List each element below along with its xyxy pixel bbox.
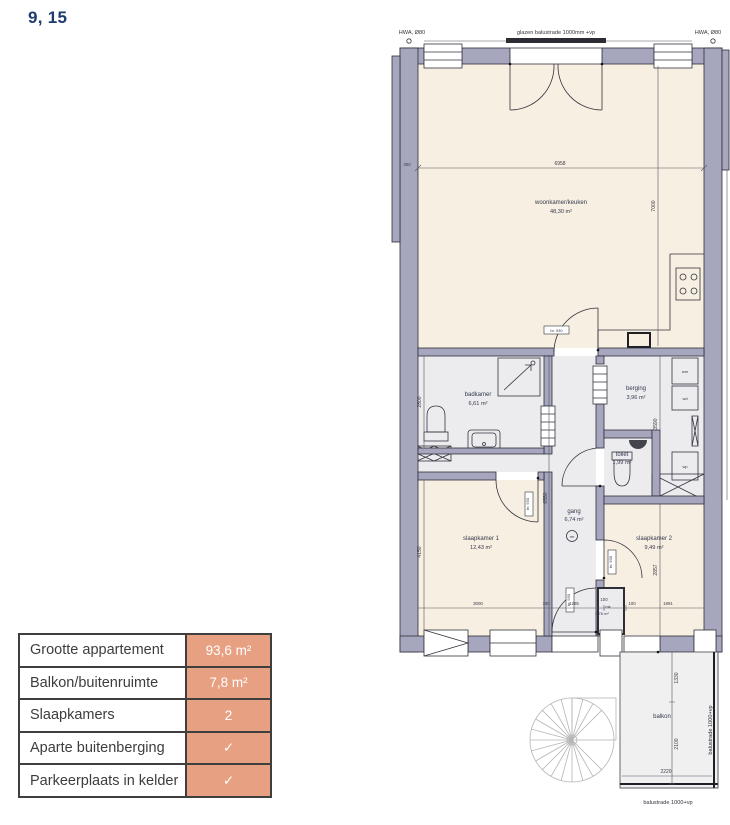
svg-text:HWA, Ø80: HWA, Ø80	[695, 30, 722, 36]
svg-text:6958: 6958	[554, 161, 565, 167]
svg-text:berging: berging	[626, 386, 646, 392]
svg-text:woonkamer/keuken: woonkamer/keuken	[534, 200, 587, 206]
svg-text:wp: wp	[682, 464, 688, 469]
svg-text:slaapkamer 1: slaapkamer 1	[463, 536, 500, 542]
spiral-staircase	[530, 698, 616, 782]
svg-text:1330: 1330	[674, 672, 680, 683]
svg-text:1,99 m²: 1,99 m²	[613, 460, 632, 466]
svg-text:7000: 7000	[651, 200, 657, 211]
svg-text:1891: 1891	[663, 601, 673, 606]
svg-text:balustrade 1000+vp: balustrade 1000+vp	[708, 705, 714, 754]
svg-text:100: 100	[600, 597, 608, 602]
svg-text:gang: gang	[567, 509, 580, 515]
svg-text:toilet: toilet	[616, 452, 629, 458]
svg-text:6550: 6550	[543, 492, 549, 503]
svg-text:1295: 1295	[569, 601, 579, 606]
svg-text:2100: 2100	[674, 738, 680, 749]
svg-text:3590: 3590	[653, 418, 659, 429]
svg-text:6,74 m²: 6,74 m²	[565, 517, 584, 523]
svg-text:100: 100	[542, 601, 550, 606]
svg-text:wm: wm	[682, 369, 689, 374]
svg-text:300: 300	[403, 162, 411, 167]
door-berging-closed	[593, 366, 607, 404]
svg-text:slaapkamer 2: slaapkamer 2	[636, 536, 673, 542]
floorplan-svg: br. 930 br. 930 br. 930 br. 930 6958 300…	[0, 0, 730, 825]
svg-text:0,76 m²: 0,76 m²	[595, 611, 609, 616]
svg-text:HWA, Ø80: HWA, Ø80	[399, 30, 426, 36]
svg-text:badkamer: badkamer	[465, 392, 492, 398]
svg-text:12,43 m²: 12,43 m²	[470, 545, 492, 551]
svg-text:wd: wd	[682, 396, 687, 401]
svg-text:3000: 3000	[473, 601, 483, 606]
svg-text:2220: 2220	[660, 769, 671, 775]
svg-text:br. 930: br. 930	[608, 555, 613, 568]
svg-text:glazen balustrade 1000mm +vp: glazen balustrade 1000mm +vp	[517, 30, 595, 36]
svg-text:100: 100	[628, 601, 636, 606]
svg-text:br. 930: br. 930	[550, 328, 563, 333]
svg-text:2800: 2800	[417, 396, 423, 407]
svg-text:balkon: balkon	[653, 714, 671, 720]
svg-text:2857: 2857	[653, 564, 659, 575]
svg-text:9,49 m²: 9,49 m²	[645, 545, 664, 551]
svg-text:48,30 m²: 48,30 m²	[550, 209, 572, 215]
svg-text:br. 930: br. 930	[525, 497, 530, 510]
svg-text:6,61 m²: 6,61 m²	[469, 401, 488, 407]
door-badkamer-closed	[541, 406, 555, 446]
svg-text:3,96 m²: 3,96 m²	[627, 395, 646, 401]
svg-text:4150: 4150	[417, 546, 423, 557]
svg-text:balustrade 1000+vp: balustrade 1000+vp	[643, 800, 692, 806]
glass-balustrade	[424, 38, 692, 43]
svg-text:rm: rm	[570, 534, 575, 539]
svg-text:mk: mk	[605, 604, 610, 609]
balcony	[620, 652, 718, 788]
floorplan: br. 930 br. 930 br. 930 br. 930 6958 300…	[0, 0, 730, 825]
